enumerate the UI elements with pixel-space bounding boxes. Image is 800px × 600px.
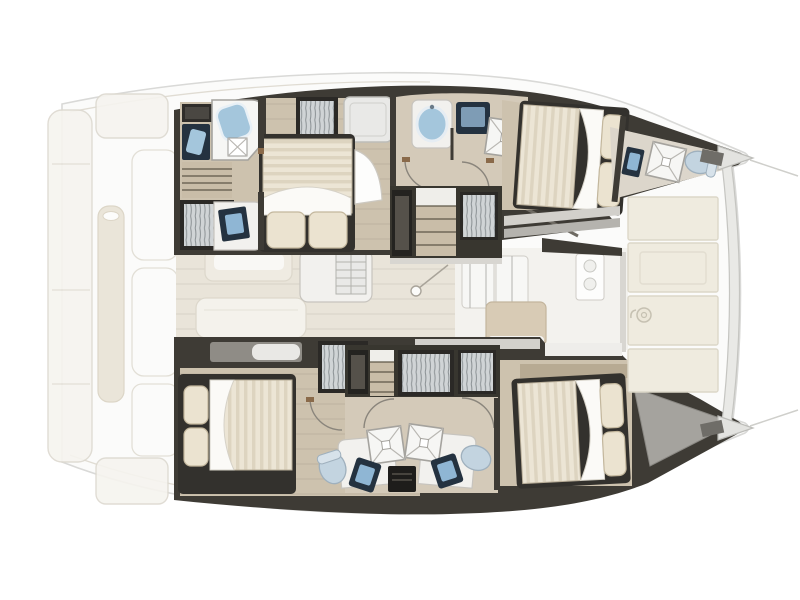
cockpit-table-top — [214, 254, 284, 270]
cabinet-panel — [185, 107, 209, 119]
wardrobe-starboard-2 — [458, 350, 496, 394]
burner-2 — [584, 278, 596, 290]
stair-landing — [370, 350, 394, 362]
catamaran-floor-plan — [0, 0, 800, 600]
shower-center — [661, 157, 671, 167]
vanity-console-basin — [461, 107, 485, 127]
stairs-base — [182, 162, 232, 198]
door-jamb — [306, 397, 314, 402]
stair-steps — [416, 206, 456, 256]
partition — [390, 94, 396, 158]
lounge-panel-4 — [628, 349, 718, 392]
stairs-starboard — [370, 350, 394, 396]
vanity-2-basin — [225, 213, 245, 235]
shower-center — [419, 438, 428, 447]
wardrobe-interior — [461, 353, 493, 391]
aft-bench-detail — [103, 212, 119, 221]
stairs-aft-port — [182, 162, 232, 198]
wardrobe-starboard-1 — [398, 350, 454, 396]
pillow — [602, 431, 626, 476]
shower-aft-starboard — [367, 426, 405, 464]
door-jamb — [402, 157, 410, 162]
wardrobe-companionway — [460, 192, 498, 240]
wardrobe-interior — [402, 354, 450, 392]
burner-1 — [584, 260, 596, 272]
wall-inset-light — [252, 344, 300, 360]
transom-port — [96, 94, 168, 138]
transom-starboard — [96, 458, 168, 504]
partition — [258, 98, 264, 148]
pillow — [184, 428, 208, 466]
double-bed-aft-starboard — [178, 374, 296, 494]
stair-steps — [370, 362, 394, 396]
locker-panel — [351, 355, 365, 389]
shower-fwd-starboard — [405, 424, 443, 462]
faucet — [430, 105, 434, 109]
pillow — [267, 212, 305, 248]
aft-bench — [98, 206, 124, 402]
cockpit-sofa — [196, 298, 306, 338]
lounge-panel-1 — [628, 197, 718, 240]
stairs-port — [416, 188, 456, 256]
companionway-starboard — [345, 345, 500, 397]
pillow — [309, 212, 347, 248]
companionway-port — [390, 186, 502, 264]
center-cabinet — [388, 466, 416, 492]
bridle-line-port — [750, 160, 798, 176]
door-jamb — [486, 158, 494, 163]
threshold — [390, 258, 502, 264]
partition — [258, 192, 264, 250]
partition — [494, 398, 500, 490]
stair-landing — [416, 188, 456, 206]
pillow — [184, 386, 208, 424]
swim-platform — [48, 110, 92, 462]
wardrobe-interior — [463, 195, 495, 237]
double-bed-fwd-starboard — [511, 373, 631, 489]
shower-bow-port — [646, 142, 687, 183]
foredeck-door — [620, 252, 626, 352]
mattress — [517, 105, 580, 209]
mattress — [518, 381, 581, 484]
shower-center — [381, 440, 390, 449]
pillow — [600, 383, 624, 428]
bridle-line-starboard — [750, 410, 798, 426]
mast-foot — [411, 286, 421, 296]
locker-panel — [395, 196, 409, 250]
threshold-galley — [545, 343, 622, 356]
floor-plan-canvas — [0, 0, 800, 600]
cabin-aft-port — [258, 97, 392, 252]
double-bed-aft-port — [259, 134, 355, 252]
sink-oval — [417, 107, 447, 141]
